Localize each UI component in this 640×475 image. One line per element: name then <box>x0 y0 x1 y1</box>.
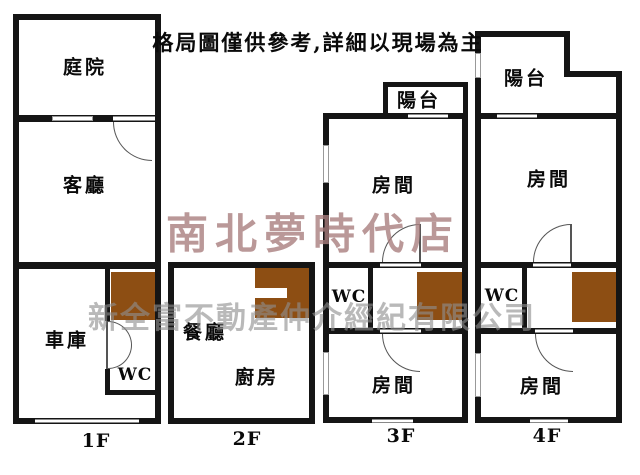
room-label-garage: 車庫 <box>45 326 89 353</box>
door-opening-4f-room-bottom <box>535 329 573 333</box>
window-3f-lower <box>323 352 329 395</box>
room-label-living: 客廳 <box>63 171 107 198</box>
stairs-icon-4f <box>572 272 616 322</box>
room-label-room-top-4f: 房間 <box>527 165 571 192</box>
door-opening-4f-room-top <box>533 263 571 267</box>
floor-label-4f: 4F <box>533 425 562 447</box>
room-label-balcony-4f: 陽台 <box>504 64 548 91</box>
wall-1f-wc-bottom <box>105 390 161 395</box>
wall-4f-balcony-top <box>475 31 570 37</box>
room-label-kitchen: 廚房 <box>235 363 279 390</box>
floor-label-1f: 1F <box>82 430 111 452</box>
window-4f-bottom <box>530 419 568 423</box>
floor-plan: 庭院 客廳 車庫 WC 1F 餐廳 廚房 2F 陽台 房間 WC 房間 3F 陽… <box>0 0 640 475</box>
wall-4f-balcony-notch-h <box>564 71 622 77</box>
room-label-balcony-3f: 陽台 <box>397 86 441 113</box>
door-opening-4f-balcony <box>497 114 537 118</box>
floor-label-2f: 2F <box>233 428 262 450</box>
window-3f-upper <box>323 145 329 183</box>
door-opening-1f-entry <box>113 116 155 121</box>
window-3f-bottom <box>372 419 413 423</box>
room-label-courtyard: 庭院 <box>63 53 107 80</box>
watermark-company-name: 新全富不動產仲介經紀有限公司 <box>88 293 536 337</box>
disclaimer-text: 格局圖僅供參考,詳細以現場為主 <box>152 27 483 57</box>
garage-door-opening-1f <box>35 419 139 423</box>
floor-label-3f: 3F <box>387 425 416 447</box>
window-4f-lower <box>475 353 481 397</box>
room-label-room-bottom-3f: 房間 <box>372 371 416 398</box>
watermark-store-name: 南北夢時代店 <box>166 201 460 262</box>
room-label-wc-1f: WC <box>118 365 153 385</box>
door-opening-3f-room-top <box>380 263 421 267</box>
wall-1f-living-garage <box>13 262 161 269</box>
window-1f-front <box>52 116 93 121</box>
wall-4f-balcony-right <box>616 71 622 119</box>
door-opening-3f-balcony <box>408 114 448 118</box>
room-label-room-bottom-4f: 房間 <box>520 372 564 399</box>
room-label-room-top-3f: 房間 <box>372 171 416 198</box>
stairs-icon-2f-top <box>255 268 309 288</box>
